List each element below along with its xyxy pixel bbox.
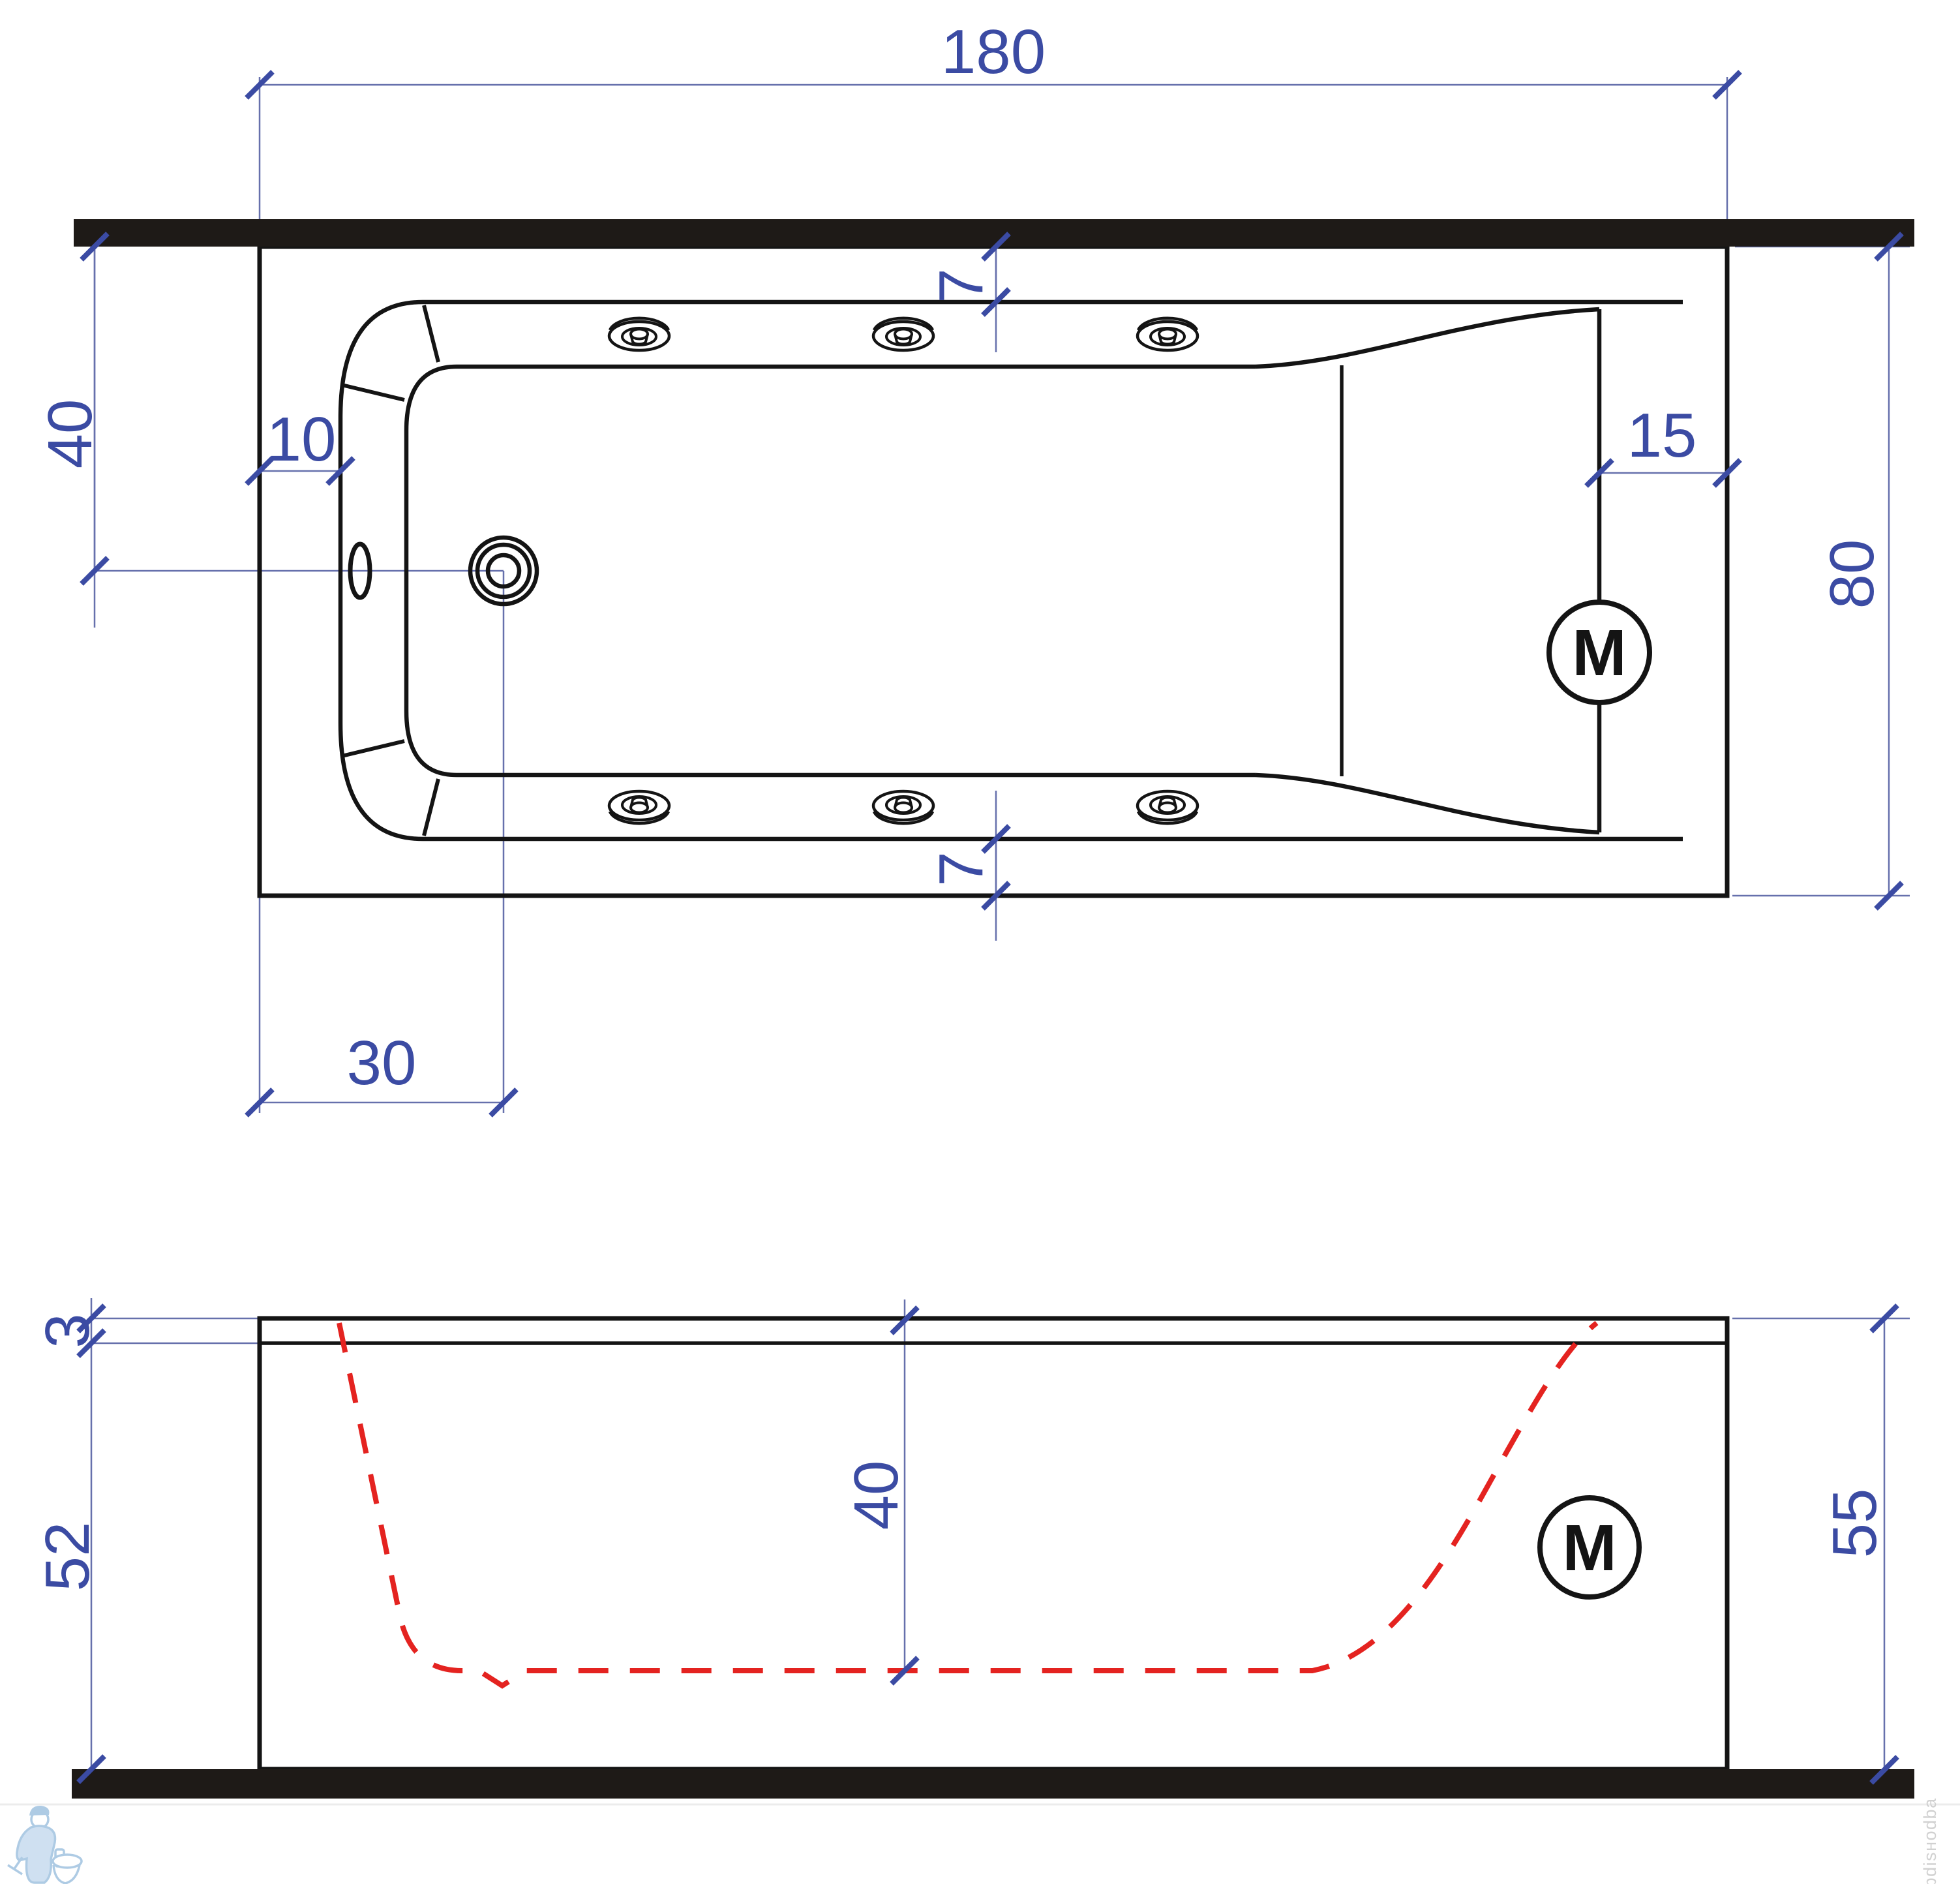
logo-wrench [8,1857,22,1874]
dim-overall-height-label: 55 [1820,1489,1890,1558]
dim-drain-from-left-label: 30 [347,1028,417,1098]
tub-rim-inner [406,367,1256,775]
jet-icon [1138,318,1198,350]
jet-icon [873,318,933,350]
dim-inner-depth-label: 40 [841,1461,911,1530]
dim-width-label: 80 [1817,539,1887,609]
logo-body [17,1826,55,1883]
jet-icon [609,791,669,823]
dim-rim-thickness-label: 3 [33,1313,102,1348]
floor-bar-bottom [72,1769,1914,1799]
dim-rim-band-bottom-label: 7 [926,851,996,886]
dim-apron-height-label: 52 [33,1522,102,1592]
dim-headrest-label: 15 [1627,401,1697,470]
dim-drain-from-wall-label: 40 [35,399,105,469]
plan-view: M 180 40 10 7 15 80 7 30 [35,17,1914,1116]
dim-rim-inset-label: 10 [267,404,337,474]
side-view: M 3 52 40 55 [0,1298,1960,1804]
technical-drawing-page: M 180 40 10 7 15 80 7 30 [0,0,1960,1884]
wall-bar-top [74,219,1914,247]
jets [609,318,1198,823]
watermark-text: фdisнodba [1920,1797,1940,1884]
motor-label-side: M [1562,1512,1616,1585]
tub-rim-outer [340,302,1683,839]
jet-icon [1138,791,1198,823]
watermark-logo [8,1806,82,1883]
motor-label-plan: M [1572,616,1626,690]
backrest-curve-bottom [1256,775,1599,832]
apron-outline-side [260,1318,1727,1769]
backrest-curve-top [1256,309,1599,367]
jet-icon [873,791,933,823]
motor-symbol-side: M [1540,1498,1639,1597]
tub-profile-hidden-line [339,1323,1597,1686]
jet-icon [609,318,669,350]
dim-length-label: 180 [941,17,1046,87]
dim-rim-band-top-label: 7 [926,268,996,303]
motor-symbol-plan: M [1549,602,1650,703]
logo-toilet-seat [53,1855,82,1868]
